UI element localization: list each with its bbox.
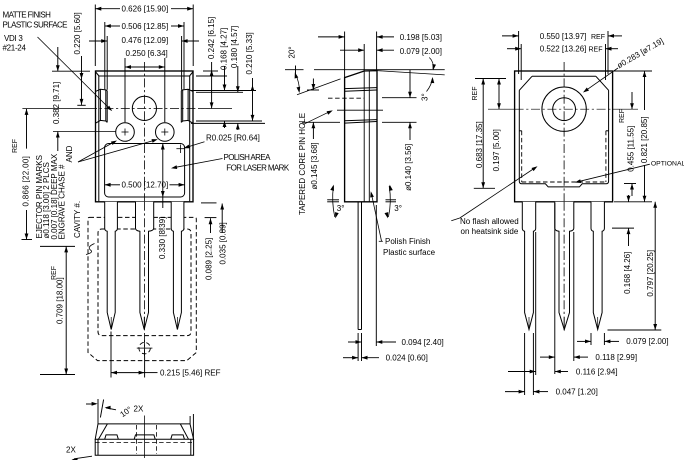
svg-text:0.626 [15.90]: 0.626 [15.90] [122,5,169,14]
svg-text:CAVITY #.: CAVITY #. [73,201,82,238]
svg-text:0.250 [6.34]: 0.250 [6.34] [126,49,168,58]
svg-text:#21-24: #21-24 [3,43,27,52]
svg-text:0.118 [2.99]: 0.118 [2.99] [595,353,637,362]
svg-text:0.382 [9.71]: 0.382 [9.71] [52,82,61,124]
svg-text:0.079 [2.00]: 0.079 [2.00] [626,337,668,346]
svg-text:0.089 [2.25]: 0.089 [2.25] [205,238,214,280]
svg-text:REF: REF [591,34,605,41]
svg-text:0.522 [13.26]: 0.522 [13.26] [540,45,587,54]
svg-text:0.330 [8.39]: 0.330 [8.39] [158,217,167,259]
svg-text:3°: 3° [337,204,345,213]
svg-text:REF: REF [472,87,479,101]
svg-text:0.683 [17.35]: 0.683 [17.35] [475,121,484,168]
svg-text:0.550 [13.97]: 0.550 [13.97] [540,32,587,41]
svg-text:Plastic surface: Plastic surface [383,248,436,257]
svg-text:0.866 [22.00]: 0.866 [22.00] [22,156,31,207]
svg-text:ø0.140 [3.56]: ø0.140 [3.56] [404,144,413,191]
svg-text:2X: 2X [66,446,76,455]
svg-text:REF: REF [12,139,19,153]
svg-text:No flash allowed: No flash allowed [460,217,519,226]
svg-text:0.180 [4.57]: 0.180 [4.57] [230,26,239,68]
svg-text:0.024 [0.60]: 0.024 [0.60] [386,354,428,363]
svg-text:0.198 [5.03]: 0.198 [5.03] [400,33,442,42]
svg-text:FOR LASER MARK: FOR LASER MARK [226,164,290,173]
svg-text:0.210 [5.33]: 0.210 [5.33] [245,32,254,74]
svg-text:3°: 3° [394,204,402,213]
svg-text:OPTIONAL: OPTIONAL [651,161,684,168]
svg-text:POLISH AREA: POLISH AREA [224,153,272,162]
svg-text:0.797 [20.25]: 0.797 [20.25] [646,250,655,297]
svg-text:0.079 [2.00]: 0.079 [2.00] [400,47,442,56]
svg-text:0.500 [12.70]: 0.500 [12.70] [122,181,169,190]
svg-text:REF: REF [619,109,626,123]
svg-text:20°: 20° [287,46,296,58]
svg-text:ENGRAVE CHASE #: ENGRAVE CHASE # [58,164,67,240]
svg-text:0.116 [2.94]: 0.116 [2.94] [576,367,618,376]
svg-text:0.047 [1.20]: 0.047 [1.20] [556,388,598,397]
svg-text:2X: 2X [134,405,144,414]
svg-text:0.506 [12.85]: 0.506 [12.85] [122,22,169,31]
svg-text:on heatsink side: on heatsink side [461,227,519,236]
svg-text:0.094 [2.40]: 0.094 [2.40] [402,338,444,347]
svg-text:0.709 [18.00]: 0.709 [18.00] [55,277,64,324]
svg-text:TAPERED CORE PIN HOLE: TAPERED CORE PIN HOLE [298,113,307,215]
svg-text:PLASTIC SURFACE: PLASTIC SURFACE [3,21,68,30]
svg-text:0.220 [5.60]: 0.220 [5.60] [73,12,82,54]
svg-text:0.821 [20.85]: 0.821 [20.85] [640,116,649,163]
svg-text:AND: AND [65,145,74,162]
svg-text:0.197 [5.00]: 0.197 [5.00] [492,129,501,171]
svg-text:3°: 3° [421,93,430,101]
svg-text:0.168 [4.27]: 0.168 [4.27] [220,28,229,70]
svg-text:MATTE FINISH: MATTE FINISH [3,11,52,20]
svg-text:0.215 [5.46] REF: 0.215 [5.46] REF [160,368,221,377]
svg-text:0.035 [0.89]: 0.035 [0.89] [219,222,228,264]
svg-text:R0.025 [R0.64]: R0.025 [R0.64] [206,134,260,143]
svg-text:REF: REF [589,47,603,54]
svg-text:0.168 [4.26]: 0.168 [4.26] [623,252,632,294]
svg-text:VDI 3: VDI 3 [4,34,23,43]
svg-text:Polish Finish: Polish Finish [385,237,430,246]
svg-text:0.242 [6.15]: 0.242 [6.15] [207,17,216,59]
svg-text:0.476 [12.09]: 0.476 [12.09] [122,36,169,45]
svg-text:0.455 [11.55]: 0.455 [11.55] [627,126,636,172]
svg-text:ø0.145 [3.68]: ø0.145 [3.68] [310,142,319,189]
